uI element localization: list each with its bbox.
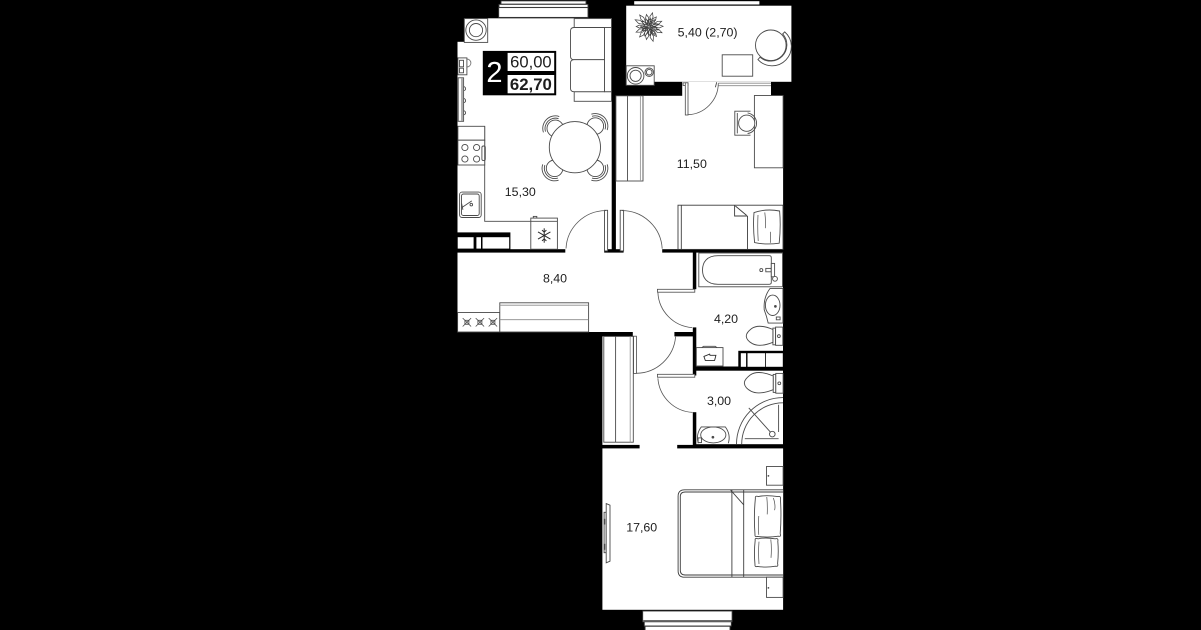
svg-text:62,70: 62,70 bbox=[510, 75, 552, 94]
svg-text:60,00: 60,00 bbox=[510, 53, 552, 72]
svg-text:4,20: 4,20 bbox=[714, 312, 738, 326]
svg-text:5,40 (2,70): 5,40 (2,70) bbox=[678, 25, 738, 39]
svg-text:3,00: 3,00 bbox=[707, 394, 731, 408]
svg-text:8,40: 8,40 bbox=[543, 271, 567, 285]
svg-text:15,30: 15,30 bbox=[505, 185, 536, 199]
svg-text:11,50: 11,50 bbox=[677, 157, 707, 171]
svg-text:2: 2 bbox=[486, 57, 502, 89]
svg-text:17,60: 17,60 bbox=[626, 521, 657, 535]
